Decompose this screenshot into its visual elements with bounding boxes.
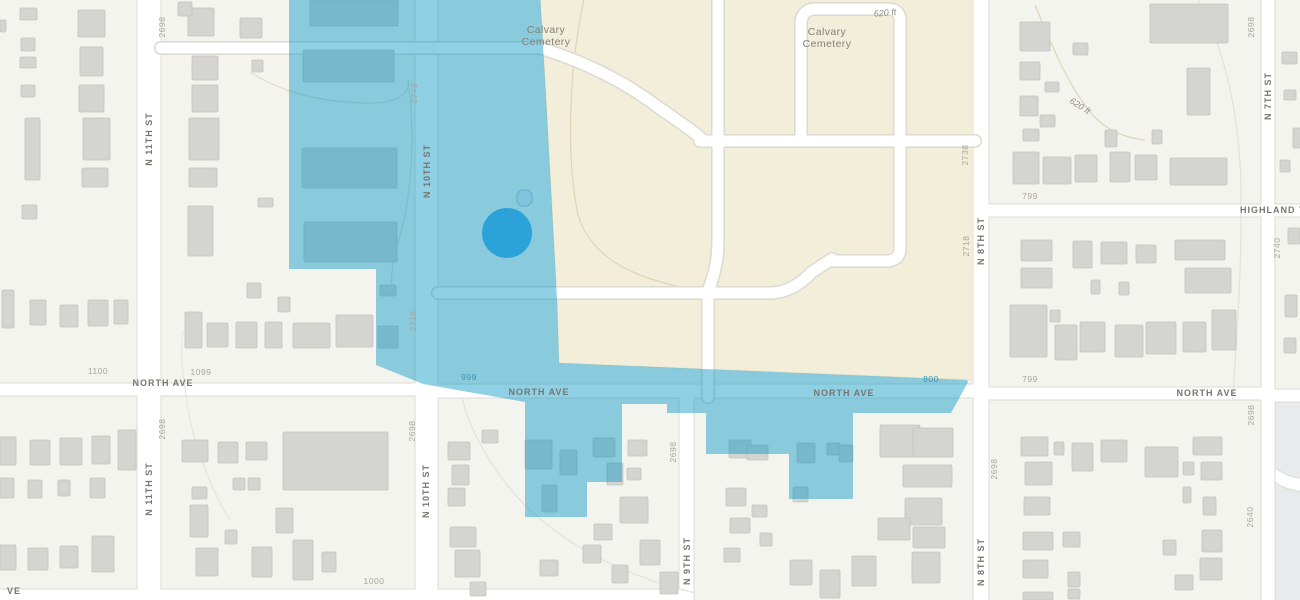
- building-footprint: [1068, 572, 1080, 587]
- building-footprint: [1010, 305, 1047, 357]
- building-footprint: [265, 322, 282, 348]
- building-footprint: [182, 440, 208, 462]
- building-footprint: [1073, 43, 1088, 55]
- building-footprint: [660, 572, 678, 594]
- building-footprint: [283, 432, 388, 490]
- building-footprint: [752, 505, 767, 517]
- building-footprint: [1285, 295, 1297, 317]
- building-footprint: [1187, 68, 1210, 115]
- building-footprint: [25, 118, 40, 180]
- building-footprint: [28, 548, 48, 570]
- building-footprint: [293, 540, 313, 580]
- building-footprint: [583, 545, 601, 563]
- building-footprint: [1175, 575, 1193, 590]
- building-footprint: [80, 47, 103, 76]
- building-footprint: [1175, 240, 1225, 260]
- building-footprint: [1055, 325, 1077, 360]
- building-footprint: [252, 60, 263, 72]
- building-footprint: [188, 206, 213, 256]
- building-footprint: [1024, 497, 1050, 515]
- building-footprint: [22, 205, 37, 219]
- building-footprint: [1021, 268, 1052, 288]
- building-footprint: [912, 552, 940, 583]
- building-footprint: [448, 442, 470, 460]
- building-footprint: [1185, 268, 1231, 293]
- building-footprint: [79, 85, 104, 112]
- building-footprint: [190, 505, 208, 537]
- building-footprint: [726, 488, 746, 506]
- building-footprint: [1020, 22, 1050, 51]
- building-footprint: [88, 300, 108, 326]
- building-footprint: [189, 168, 217, 187]
- building-footprint: [1020, 96, 1038, 116]
- building-footprint: [905, 498, 942, 525]
- building-footprint: [1073, 241, 1092, 268]
- building-footprint: [1025, 462, 1052, 485]
- building-footprint: [1040, 115, 1055, 127]
- building-footprint: [540, 560, 558, 576]
- building-footprint: [114, 300, 128, 324]
- building-footprint: [192, 56, 218, 80]
- building-footprint: [60, 305, 78, 327]
- building-footprint: [1282, 52, 1297, 64]
- building-footprint: [913, 527, 945, 548]
- building-footprint: [1183, 487, 1191, 503]
- building-footprint: [448, 488, 465, 506]
- building-footprint: [628, 440, 647, 456]
- building-footprint: [455, 550, 480, 577]
- building-footprint: [185, 312, 202, 348]
- building-footprint: [1050, 310, 1060, 322]
- building-footprint: [0, 478, 14, 498]
- building-footprint: [1072, 443, 1093, 471]
- building-footprint: [1284, 338, 1296, 353]
- building-footprint: [627, 468, 641, 480]
- building-footprint: [236, 322, 257, 348]
- building-footprint: [118, 430, 136, 470]
- building-footprint: [1146, 322, 1176, 354]
- building-footprint: [0, 20, 6, 32]
- building-footprint: [452, 465, 469, 485]
- building-footprint: [1136, 245, 1156, 263]
- building-footprint: [1023, 532, 1053, 550]
- building-footprint: [92, 436, 110, 464]
- building-footprint: [1150, 4, 1228, 43]
- building-footprint: [730, 518, 750, 533]
- building-footprint: [1068, 589, 1080, 599]
- building-footprint: [1152, 130, 1162, 144]
- building-footprint: [21, 85, 35, 97]
- building-footprint: [293, 323, 330, 348]
- building-footprint: [1203, 497, 1216, 515]
- building-footprint: [1045, 82, 1059, 92]
- building-footprint: [1212, 310, 1236, 350]
- building-footprint: [1091, 280, 1100, 294]
- building-footprint: [470, 582, 486, 596]
- building-footprint: [1101, 242, 1127, 264]
- building-footprint: [1063, 532, 1080, 547]
- building-footprint: [1119, 282, 1129, 295]
- building-footprint: [1170, 158, 1227, 185]
- building-footprint: [1110, 152, 1130, 182]
- building-footprint: [1193, 437, 1222, 455]
- calvary-cemetery-grounds: [540, 0, 973, 380]
- building-footprint: [1101, 440, 1127, 462]
- building-footprint: [1023, 592, 1053, 600]
- building-footprint: [724, 548, 740, 562]
- building-footprint: [1183, 322, 1206, 352]
- building-footprint: [1021, 240, 1052, 261]
- building-footprint: [192, 487, 207, 499]
- building-footprint: [20, 8, 37, 20]
- selected-location-marker[interactable]: [482, 208, 532, 258]
- building-footprint: [218, 442, 238, 463]
- building-footprint: [20, 57, 36, 68]
- building-footprint: [760, 533, 772, 546]
- building-footprint: [620, 497, 648, 523]
- building-footprint: [612, 565, 628, 583]
- building-footprint: [1200, 558, 1222, 580]
- building-footprint: [450, 527, 476, 547]
- building-footprint: [78, 10, 105, 37]
- building-footprint: [1163, 540, 1176, 555]
- building-footprint: [1105, 130, 1117, 147]
- building-footprint: [1020, 62, 1040, 80]
- building-footprint: [60, 438, 82, 465]
- building-footprint: [482, 430, 498, 443]
- building-footprint: [28, 480, 42, 498]
- building-footprint: [248, 478, 260, 490]
- building-footprint: [640, 540, 660, 565]
- building-footprint: [820, 570, 840, 598]
- building-footprint: [246, 442, 267, 460]
- building-footprint: [878, 518, 910, 540]
- building-footprint: [1054, 442, 1064, 455]
- building-footprint: [1021, 437, 1048, 456]
- building-footprint: [852, 556, 876, 586]
- building-footprint: [247, 283, 261, 298]
- building-footprint: [30, 440, 50, 465]
- building-footprint: [1201, 462, 1222, 480]
- building-footprint: [1280, 160, 1290, 172]
- map-canvas[interactable]: N 11TH STN 11TH STN 10TH STN 10TH STN 9T…: [0, 0, 1300, 600]
- building-footprint: [276, 508, 293, 533]
- building-footprint: [322, 552, 336, 572]
- building-footprint: [913, 428, 953, 457]
- building-footprint: [2, 290, 14, 328]
- building-footprint: [0, 437, 16, 465]
- building-footprint: [192, 85, 218, 112]
- basemap-svg: [0, 0, 1300, 600]
- building-footprint: [278, 297, 290, 312]
- building-footprint: [1145, 447, 1178, 477]
- building-footprint: [90, 478, 105, 498]
- building-footprint: [58, 480, 70, 496]
- building-footprint: [1043, 157, 1071, 184]
- building-footprint: [233, 478, 245, 490]
- building-footprint: [1075, 155, 1097, 182]
- building-footprint: [189, 118, 219, 160]
- building-footprint: [30, 300, 46, 325]
- building-footprint: [60, 546, 78, 568]
- building-footprint: [83, 118, 110, 160]
- building-footprint: [1183, 462, 1194, 475]
- building-footprint: [1023, 560, 1048, 578]
- building-footprint: [1288, 228, 1300, 244]
- building-footprint: [336, 315, 373, 347]
- map-blob-building: [517, 190, 532, 206]
- building-footprint: [1023, 129, 1039, 141]
- building-footprint: [1135, 155, 1157, 180]
- building-footprint: [1080, 322, 1105, 352]
- building-footprint: [1202, 530, 1222, 552]
- building-footprint: [196, 548, 218, 576]
- building-footprint: [0, 545, 16, 570]
- building-footprint: [240, 18, 262, 38]
- building-footprint: [790, 560, 812, 585]
- building-footprint: [1115, 325, 1143, 357]
- building-footprint: [258, 198, 273, 207]
- building-footprint: [903, 465, 952, 487]
- building-footprint: [21, 38, 35, 51]
- building-footprint: [82, 168, 108, 187]
- building-footprint: [252, 547, 272, 577]
- building-footprint: [1284, 90, 1296, 100]
- building-footprint: [1013, 152, 1039, 184]
- building-footprint: [92, 536, 114, 572]
- building-footprint: [225, 530, 237, 544]
- building-footprint: [1293, 128, 1300, 148]
- building-footprint: [207, 323, 228, 347]
- building-footprint: [178, 2, 192, 16]
- building-footprint: [594, 524, 612, 540]
